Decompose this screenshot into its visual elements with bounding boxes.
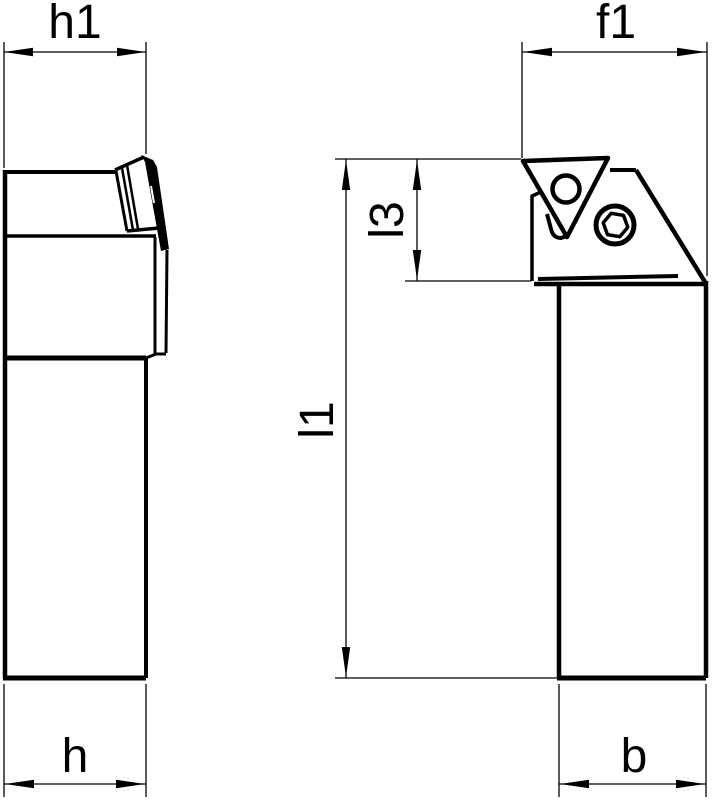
dim-label-f1: f1 [596,0,636,49]
arrow-left-icon [4,48,33,56]
dim-h: h [4,684,146,797]
head-left-edge [532,192,541,281]
drawing-svg: h1 f1 l3 l1 [0,0,713,800]
hex-socket-icon [603,213,628,236]
clamp-inner-line-2 [127,165,138,229]
dim-label-l3: l3 [361,201,414,238]
side-view [3,155,169,678]
dim-label-h1: h1 [48,0,101,49]
clamp-front-bottom-edge [538,276,678,279]
clamp-front-slant-edge [636,170,705,282]
front-view [523,158,706,678]
technical-drawing-canvas: h1 f1 l3 l1 [0,0,713,800]
arrow-down-icon [342,647,350,677]
arrow-right-icon [677,48,706,56]
side-view-step-edge [146,354,166,358]
dim-label-l1: l1 [291,401,344,438]
dim-l3: l3 [361,159,531,281]
arrow-left-icon [523,48,552,56]
dim-label-h: h [62,730,89,783]
dim-b: b [559,684,706,797]
arrow-right-icon [676,780,705,788]
arrow-right-icon [117,48,146,56]
arrow-left-icon [5,780,34,788]
dim-l1: l1 [291,159,557,678]
side-view-face-outer-edge [166,250,167,353]
arrow-right-icon [116,780,145,788]
dim-label-b: b [621,730,648,783]
clamp-top-edge [115,157,144,170]
arrow-down-icon [413,250,421,280]
arrow-left-icon [560,780,589,788]
dim-h1: h1 [4,0,146,168]
arrow-up-icon [342,160,350,190]
arrow-up-icon [413,160,421,190]
